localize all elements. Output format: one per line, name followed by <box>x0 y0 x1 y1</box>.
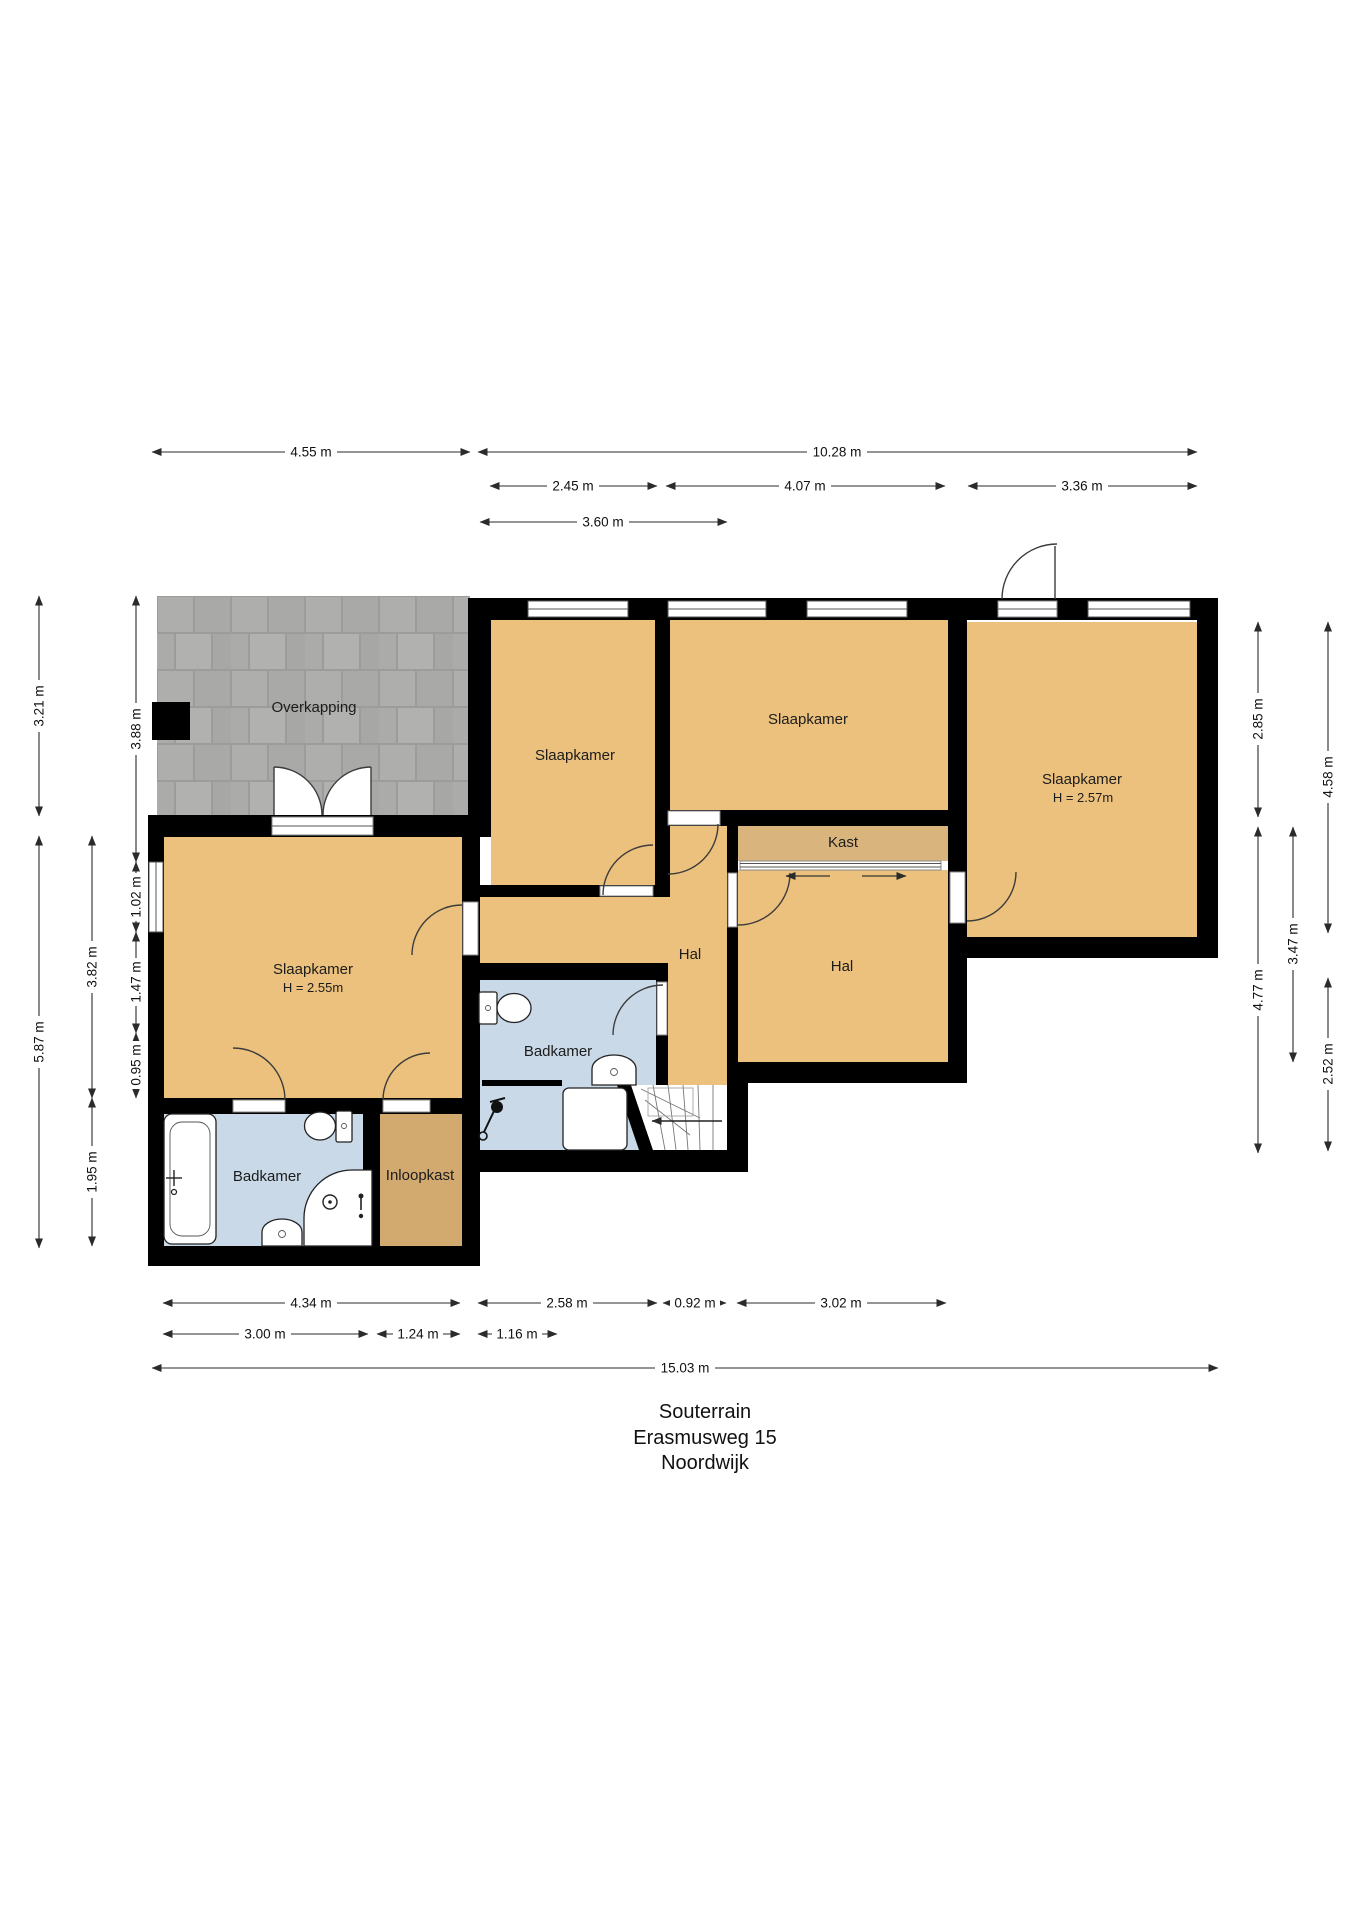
window-slaapkamer-left-west <box>149 862 163 932</box>
room-label-hal-middle: Hal <box>679 946 702 963</box>
svg-text:15.03 m: 15.03 m <box>661 1361 710 1376</box>
svg-text:3.02 m: 3.02 m <box>820 1296 861 1311</box>
window-slaapkamer-top-mid-west <box>668 601 766 617</box>
svg-text:3.88 m: 3.88 m <box>129 708 144 749</box>
toilet-left <box>305 1111 353 1142</box>
svg-text:2.45 m: 2.45 m <box>552 479 593 494</box>
svg-text:1.16 m: 1.16 m <box>496 1327 537 1342</box>
dimensions-bottom: 4.34 m 2.58 m 0.92 m 3.02 m 3.00 m 1.24 … <box>152 1295 1218 1376</box>
dimensions-top: 4.55 m 10.28 m 2.45 m 4.07 m 3.36 m 3.60… <box>152 444 1197 530</box>
title-floor: Souterrain <box>659 1401 751 1423</box>
floorplan-page: Overkapping Slaapkamer Slaapkamer Slaapk… <box>0 0 1358 1920</box>
svg-text:3.21 m: 3.21 m <box>32 685 47 726</box>
room-label-badkamer-middle: Badkamer <box>524 1043 592 1060</box>
window-slaapkamer-top-mid-east <box>807 601 907 617</box>
room-label-slaapkamer-top-mid: Slaapkamer <box>768 711 848 728</box>
room-label-overkapping: Overkapping <box>271 699 356 716</box>
room-label-hal-right: Hal <box>831 958 854 975</box>
dim-top-407: 4.07 m <box>666 478 945 494</box>
dim-top-360: 3.60 m <box>480 514 727 530</box>
svg-text:4.58 m: 4.58 m <box>1321 756 1336 797</box>
dim-top-1028: 10.28 m <box>478 444 1197 460</box>
dim-bottom-092: 0.92 m <box>663 1295 726 1311</box>
svg-text:1.95 m: 1.95 m <box>85 1151 100 1192</box>
bathtub-left <box>164 1114 216 1244</box>
floorplan-canvas: Overkapping Slaapkamer Slaapkamer Slaapk… <box>0 0 1358 1920</box>
dim-bottom-1503: 15.03 m <box>152 1360 1218 1376</box>
svg-text:4.07 m: 4.07 m <box>784 479 825 494</box>
svg-text:10.28 m: 10.28 m <box>813 445 862 460</box>
dim-left-388: 3.88 m <box>128 596 144 862</box>
svg-text:4.55 m: 4.55 m <box>290 445 331 460</box>
sink-middle <box>592 1055 636 1085</box>
dim-left-382: 3.82 m <box>84 836 100 1098</box>
svg-text:1.47 m: 1.47 m <box>129 961 144 1002</box>
shower-tray-middle <box>563 1088 627 1150</box>
toilet-middle <box>479 992 531 1024</box>
dim-bottom-258: 2.58 m <box>478 1295 657 1311</box>
dim-right-252: 2.52 m <box>1320 978 1336 1151</box>
dim-left-102: 1.02 m <box>128 862 144 932</box>
svg-text:0.92 m: 0.92 m <box>674 1296 715 1311</box>
dim-top-245: 2.45 m <box>490 478 657 494</box>
dim-bottom-302: 3.02 m <box>737 1295 946 1311</box>
dim-top-336: 3.36 m <box>968 478 1197 494</box>
svg-text:3.36 m: 3.36 m <box>1061 479 1102 494</box>
room-label-slaapkamer-right: Slaapkamer <box>1042 771 1122 788</box>
plan-title: Souterrain Erasmusweg 15 Noordwijk <box>633 1401 776 1474</box>
room-label-slaapkamer-top-left: Slaapkamer <box>535 747 615 764</box>
dim-right-477: 4.77 m <box>1250 827 1266 1153</box>
svg-text:4.77 m: 4.77 m <box>1251 969 1266 1010</box>
entry-door <box>998 544 1057 617</box>
svg-text:3.82 m: 3.82 m <box>85 946 100 987</box>
room-label-badkamer-left: Badkamer <box>233 1168 301 1185</box>
svg-text:0.95 m: 0.95 m <box>129 1044 144 1085</box>
dimensions-right: 2.85 m 4.77 m 3.47 m 4.58 m 2.52 m <box>1250 622 1336 1153</box>
dim-bottom-300: 3.00 m <box>163 1326 368 1342</box>
title-city: Noordwijk <box>661 1452 750 1474</box>
dim-right-347: 3.47 m <box>1285 827 1301 1062</box>
svg-text:3.47 m: 3.47 m <box>1286 923 1301 964</box>
dim-bottom-116: 1.16 m <box>478 1326 557 1342</box>
room-height-slaapkamer-left: H = 2.55m <box>283 980 343 995</box>
title-address: Erasmusweg 15 <box>633 1427 776 1449</box>
dim-bottom-434: 4.34 m <box>163 1295 460 1311</box>
dim-right-458: 4.58 m <box>1320 622 1336 933</box>
room-label-kast: Kast <box>828 834 859 851</box>
window-slaapkamer-top-left <box>528 601 628 617</box>
dim-bottom-124: 1.24 m <box>377 1326 460 1342</box>
dim-left-587: 5.87 m <box>31 836 47 1248</box>
svg-text:5.87 m: 5.87 m <box>32 1021 47 1062</box>
window-slaapkamer-right <box>1088 601 1190 617</box>
svg-text:3.00 m: 3.00 m <box>244 1327 285 1342</box>
dimensions-left: 3.21 m 5.87 m 3.82 m 1.95 m 3.88 m 1.02 … <box>31 596 144 1248</box>
sink-left <box>262 1219 302 1246</box>
room-label-inloopkast: Inloopkast <box>386 1167 455 1184</box>
svg-text:3.60 m: 3.60 m <box>582 515 623 530</box>
svg-text:1.24 m: 1.24 m <box>397 1327 438 1342</box>
svg-text:4.34 m: 4.34 m <box>290 1296 331 1311</box>
pillar <box>152 702 190 740</box>
dim-top-455: 4.55 m <box>152 444 470 460</box>
svg-text:2.52 m: 2.52 m <box>1321 1043 1336 1084</box>
room-label-slaapkamer-left: Slaapkamer <box>273 961 353 978</box>
room-height-slaapkamer-right: H = 2.57m <box>1053 790 1113 805</box>
svg-text:2.85 m: 2.85 m <box>1251 698 1266 739</box>
dim-left-147: 1.47 m <box>128 932 144 1033</box>
dim-left-195: 1.95 m <box>84 1098 100 1246</box>
dim-left-095: 0.95 m <box>128 1033 144 1098</box>
svg-text:2.58 m: 2.58 m <box>546 1296 587 1311</box>
dim-right-285: 2.85 m <box>1250 622 1266 817</box>
dim-left-321: 3.21 m <box>31 596 47 816</box>
svg-text:1.02 m: 1.02 m <box>129 876 144 917</box>
